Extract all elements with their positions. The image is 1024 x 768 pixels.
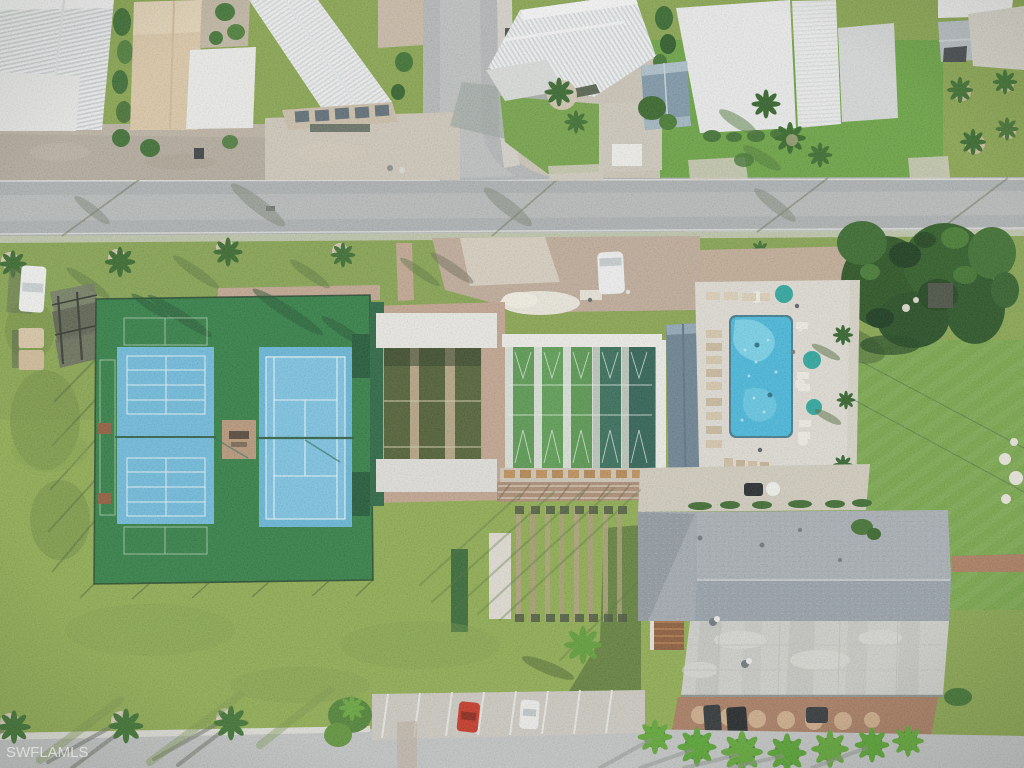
svg-text:SWFLAMLS: SWFLAMLS <box>6 744 89 761</box>
